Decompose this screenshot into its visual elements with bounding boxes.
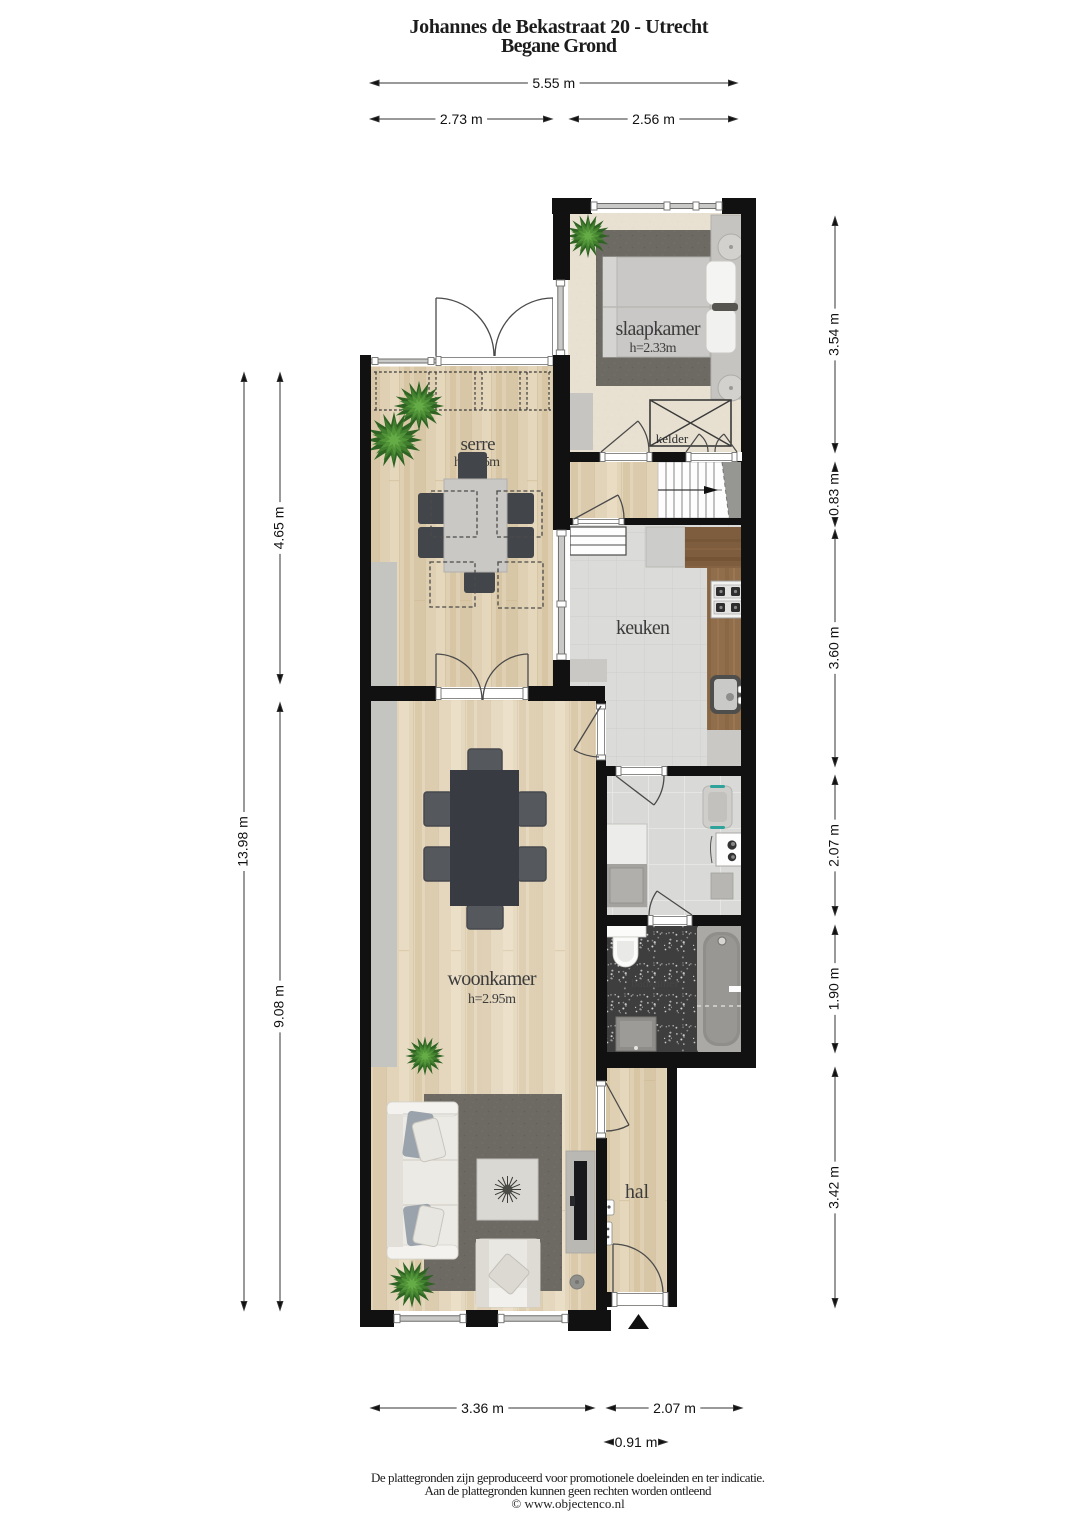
svg-text:0.83 m: 0.83 m <box>826 473 842 516</box>
svg-text:3.42 m: 3.42 m <box>826 1166 842 1209</box>
svg-text:13.98 m: 13.98 m <box>235 816 251 867</box>
svg-text:0.91 m: 0.91 m <box>615 1434 658 1450</box>
svg-text:slaapkamer: slaapkamer <box>616 318 701 340</box>
svg-text:© www.objectenco.nl: © www.objectenco.nl <box>511 1496 625 1511</box>
svg-text:woonkamer: woonkamer <box>448 968 537 990</box>
svg-text:9.08 m: 9.08 m <box>271 985 287 1028</box>
svg-text:3.60 m: 3.60 m <box>826 627 842 670</box>
svg-text:1.90 m: 1.90 m <box>826 968 842 1011</box>
svg-text:2.07 m: 2.07 m <box>653 1400 696 1416</box>
svg-text:2.73 m: 2.73 m <box>440 111 483 127</box>
svg-text:keuken: keuken <box>616 617 670 639</box>
svg-text:serre: serre <box>461 434 496 455</box>
svg-text:badkamer: badkamer <box>631 976 678 990</box>
svg-text:kelder: kelder <box>656 431 689 446</box>
svg-text:2.07 m: 2.07 m <box>826 824 842 867</box>
svg-text:hal: hal <box>625 1181 649 1203</box>
svg-text:2.56 m: 2.56 m <box>632 111 675 127</box>
svg-text:4.65 m: 4.65 m <box>271 507 287 550</box>
svg-text:Begane Grond: Begane Grond <box>501 35 617 57</box>
svg-text:5.55 m: 5.55 m <box>532 75 575 91</box>
svg-text:h=2.95m: h=2.95m <box>468 992 516 1007</box>
svg-text:3.54 m: 3.54 m <box>826 313 842 356</box>
svg-text:h=2.33m: h=2.33m <box>630 341 677 356</box>
svg-text:3.36 m: 3.36 m <box>461 1400 504 1416</box>
